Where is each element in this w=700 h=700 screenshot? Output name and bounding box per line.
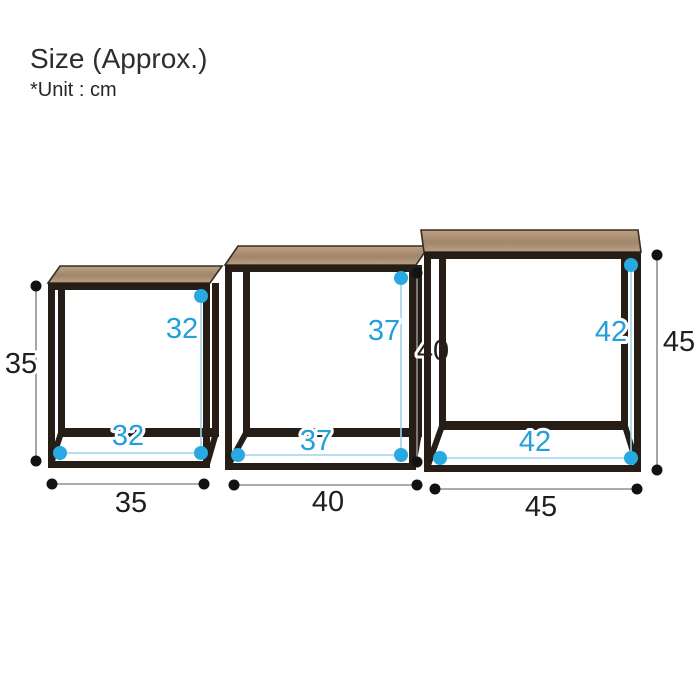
inner-top-dot: [624, 258, 638, 272]
outer-width-left-dot: [430, 484, 441, 495]
inner-left-dot: [433, 451, 447, 465]
outer-width-label: 40: [312, 486, 344, 518]
outer-width-right-dot: [199, 479, 210, 490]
outer-height-top-dot: [652, 250, 663, 261]
outer-width-left-dot: [47, 479, 58, 490]
inner-corner-dot: [194, 446, 208, 460]
inner-width-label: 32: [112, 420, 144, 452]
inner-height-label: 42: [595, 316, 627, 348]
outer-width-right-dot: [412, 480, 423, 491]
rear-left-leg: [58, 283, 65, 437]
medium-table: 37374040: [225, 246, 449, 518]
rear-right-leg: [212, 283, 219, 437]
outer-width-label: 45: [525, 491, 557, 523]
inner-left-dot: [53, 446, 67, 460]
outer-height-bottom-dot: [652, 465, 663, 476]
inner-left-dot: [231, 448, 245, 462]
outer-height-bottom-dot: [31, 456, 42, 467]
inner-corner-dot: [394, 448, 408, 462]
outer-height-top-dot: [412, 268, 423, 279]
rear-bottom-bar: [243, 428, 422, 437]
wood-top: [48, 266, 222, 283]
inner-width-label: 37: [300, 425, 332, 457]
outer-height-top-dot: [31, 281, 42, 292]
outer-height-bottom-dot: [412, 457, 423, 468]
rear-left-leg: [243, 265, 250, 437]
outer-width-left-dot: [229, 480, 240, 491]
inner-top-dot: [194, 289, 208, 303]
large-table: 42424545: [421, 230, 695, 523]
small-table: 32323535: [5, 266, 222, 519]
outer-height-label: 45: [663, 326, 695, 358]
dimension-diagram: 323235353737404042424545: [0, 0, 700, 700]
outer-width-right-dot: [632, 484, 643, 495]
wood-top: [421, 230, 641, 252]
outer-width-label: 35: [115, 487, 147, 519]
size-diagram-canvas: Size (Approx.) *Unit : cm 32323535373740…: [0, 0, 700, 700]
inner-height-label: 32: [166, 313, 198, 345]
inner-width-label: 42: [519, 426, 551, 458]
rear-left-leg: [439, 252, 446, 430]
wood-top: [225, 246, 429, 265]
outer-height-label: 35: [5, 348, 37, 380]
inner-corner-dot: [624, 451, 638, 465]
inner-top-dot: [394, 271, 408, 285]
inner-height-label: 37: [368, 315, 400, 347]
